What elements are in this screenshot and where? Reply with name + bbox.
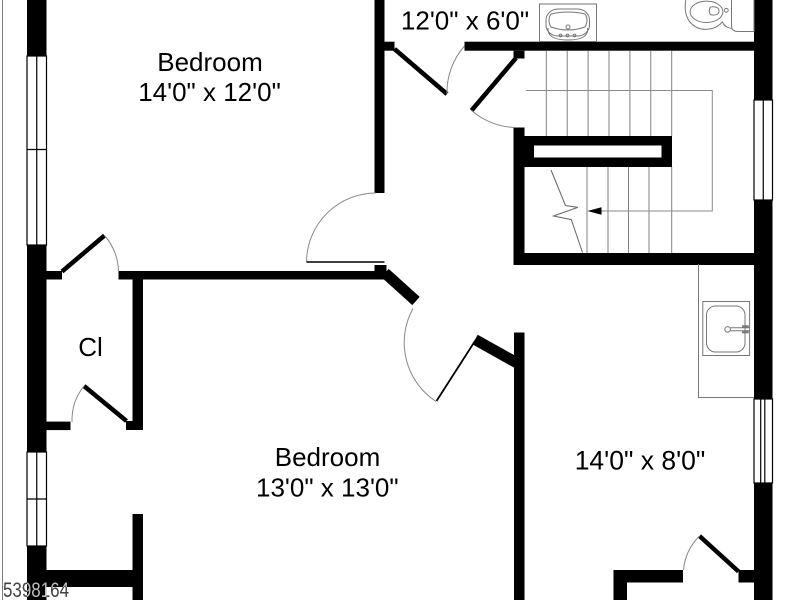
svg-text:13'0" x 13'0": 13'0" x 13'0" <box>256 472 399 502</box>
svg-text:14'0" x 8'0": 14'0" x 8'0" <box>575 446 706 476</box>
svg-text:Bedroom: Bedroom <box>275 442 381 472</box>
svg-text:Bedroom: Bedroom <box>157 47 263 77</box>
svg-text:12'0" x 6'0": 12'0" x 6'0" <box>401 6 529 36</box>
svg-text:14'0" x 12'0": 14'0" x 12'0" <box>138 77 281 107</box>
svg-text:Cl: Cl <box>78 332 103 362</box>
svg-text:5398164: 5398164 <box>3 579 69 600</box>
